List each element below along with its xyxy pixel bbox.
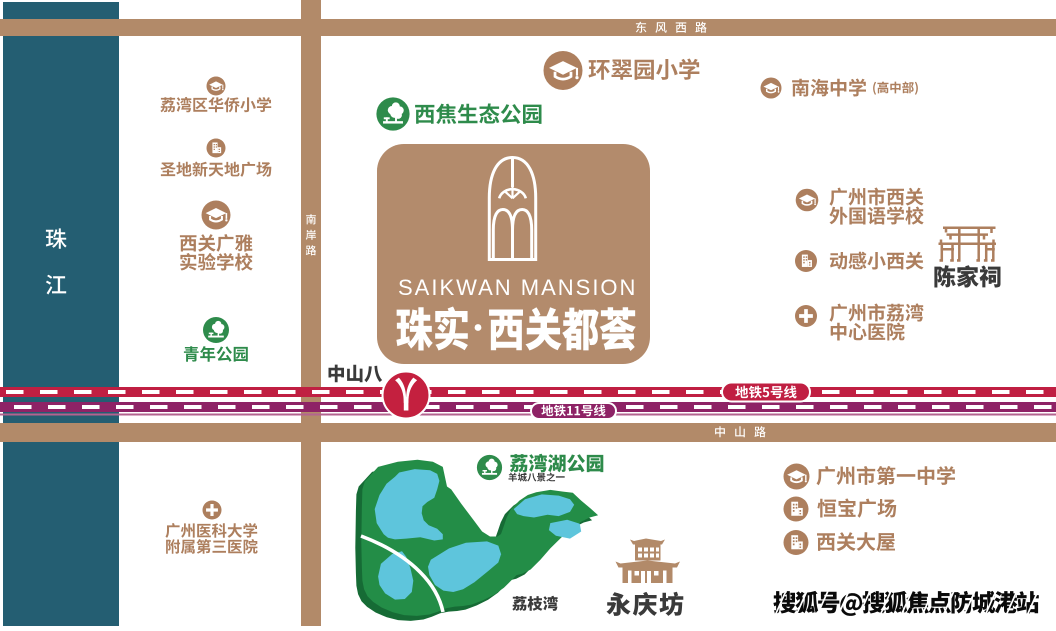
svg-text:SAIKWAN MANSION: SAIKWAN MANSION: [398, 275, 637, 300]
